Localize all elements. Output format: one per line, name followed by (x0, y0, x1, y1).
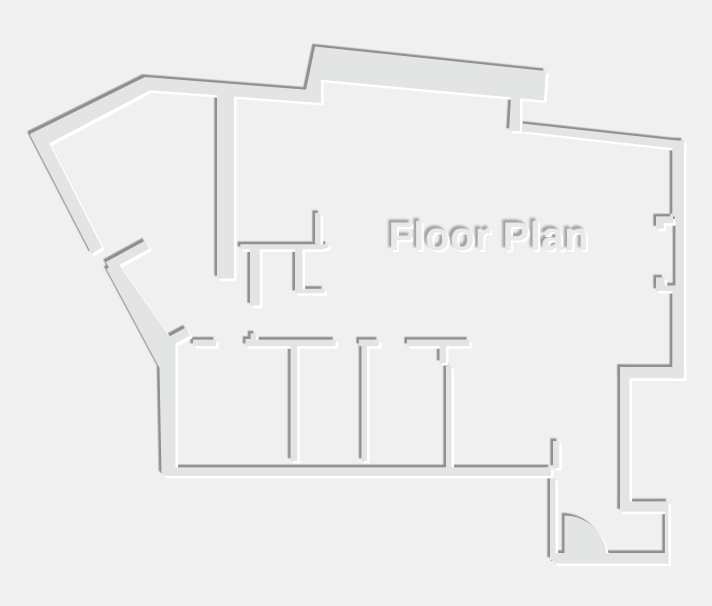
svg-text:Floor Plan: Floor Plan (389, 215, 590, 259)
